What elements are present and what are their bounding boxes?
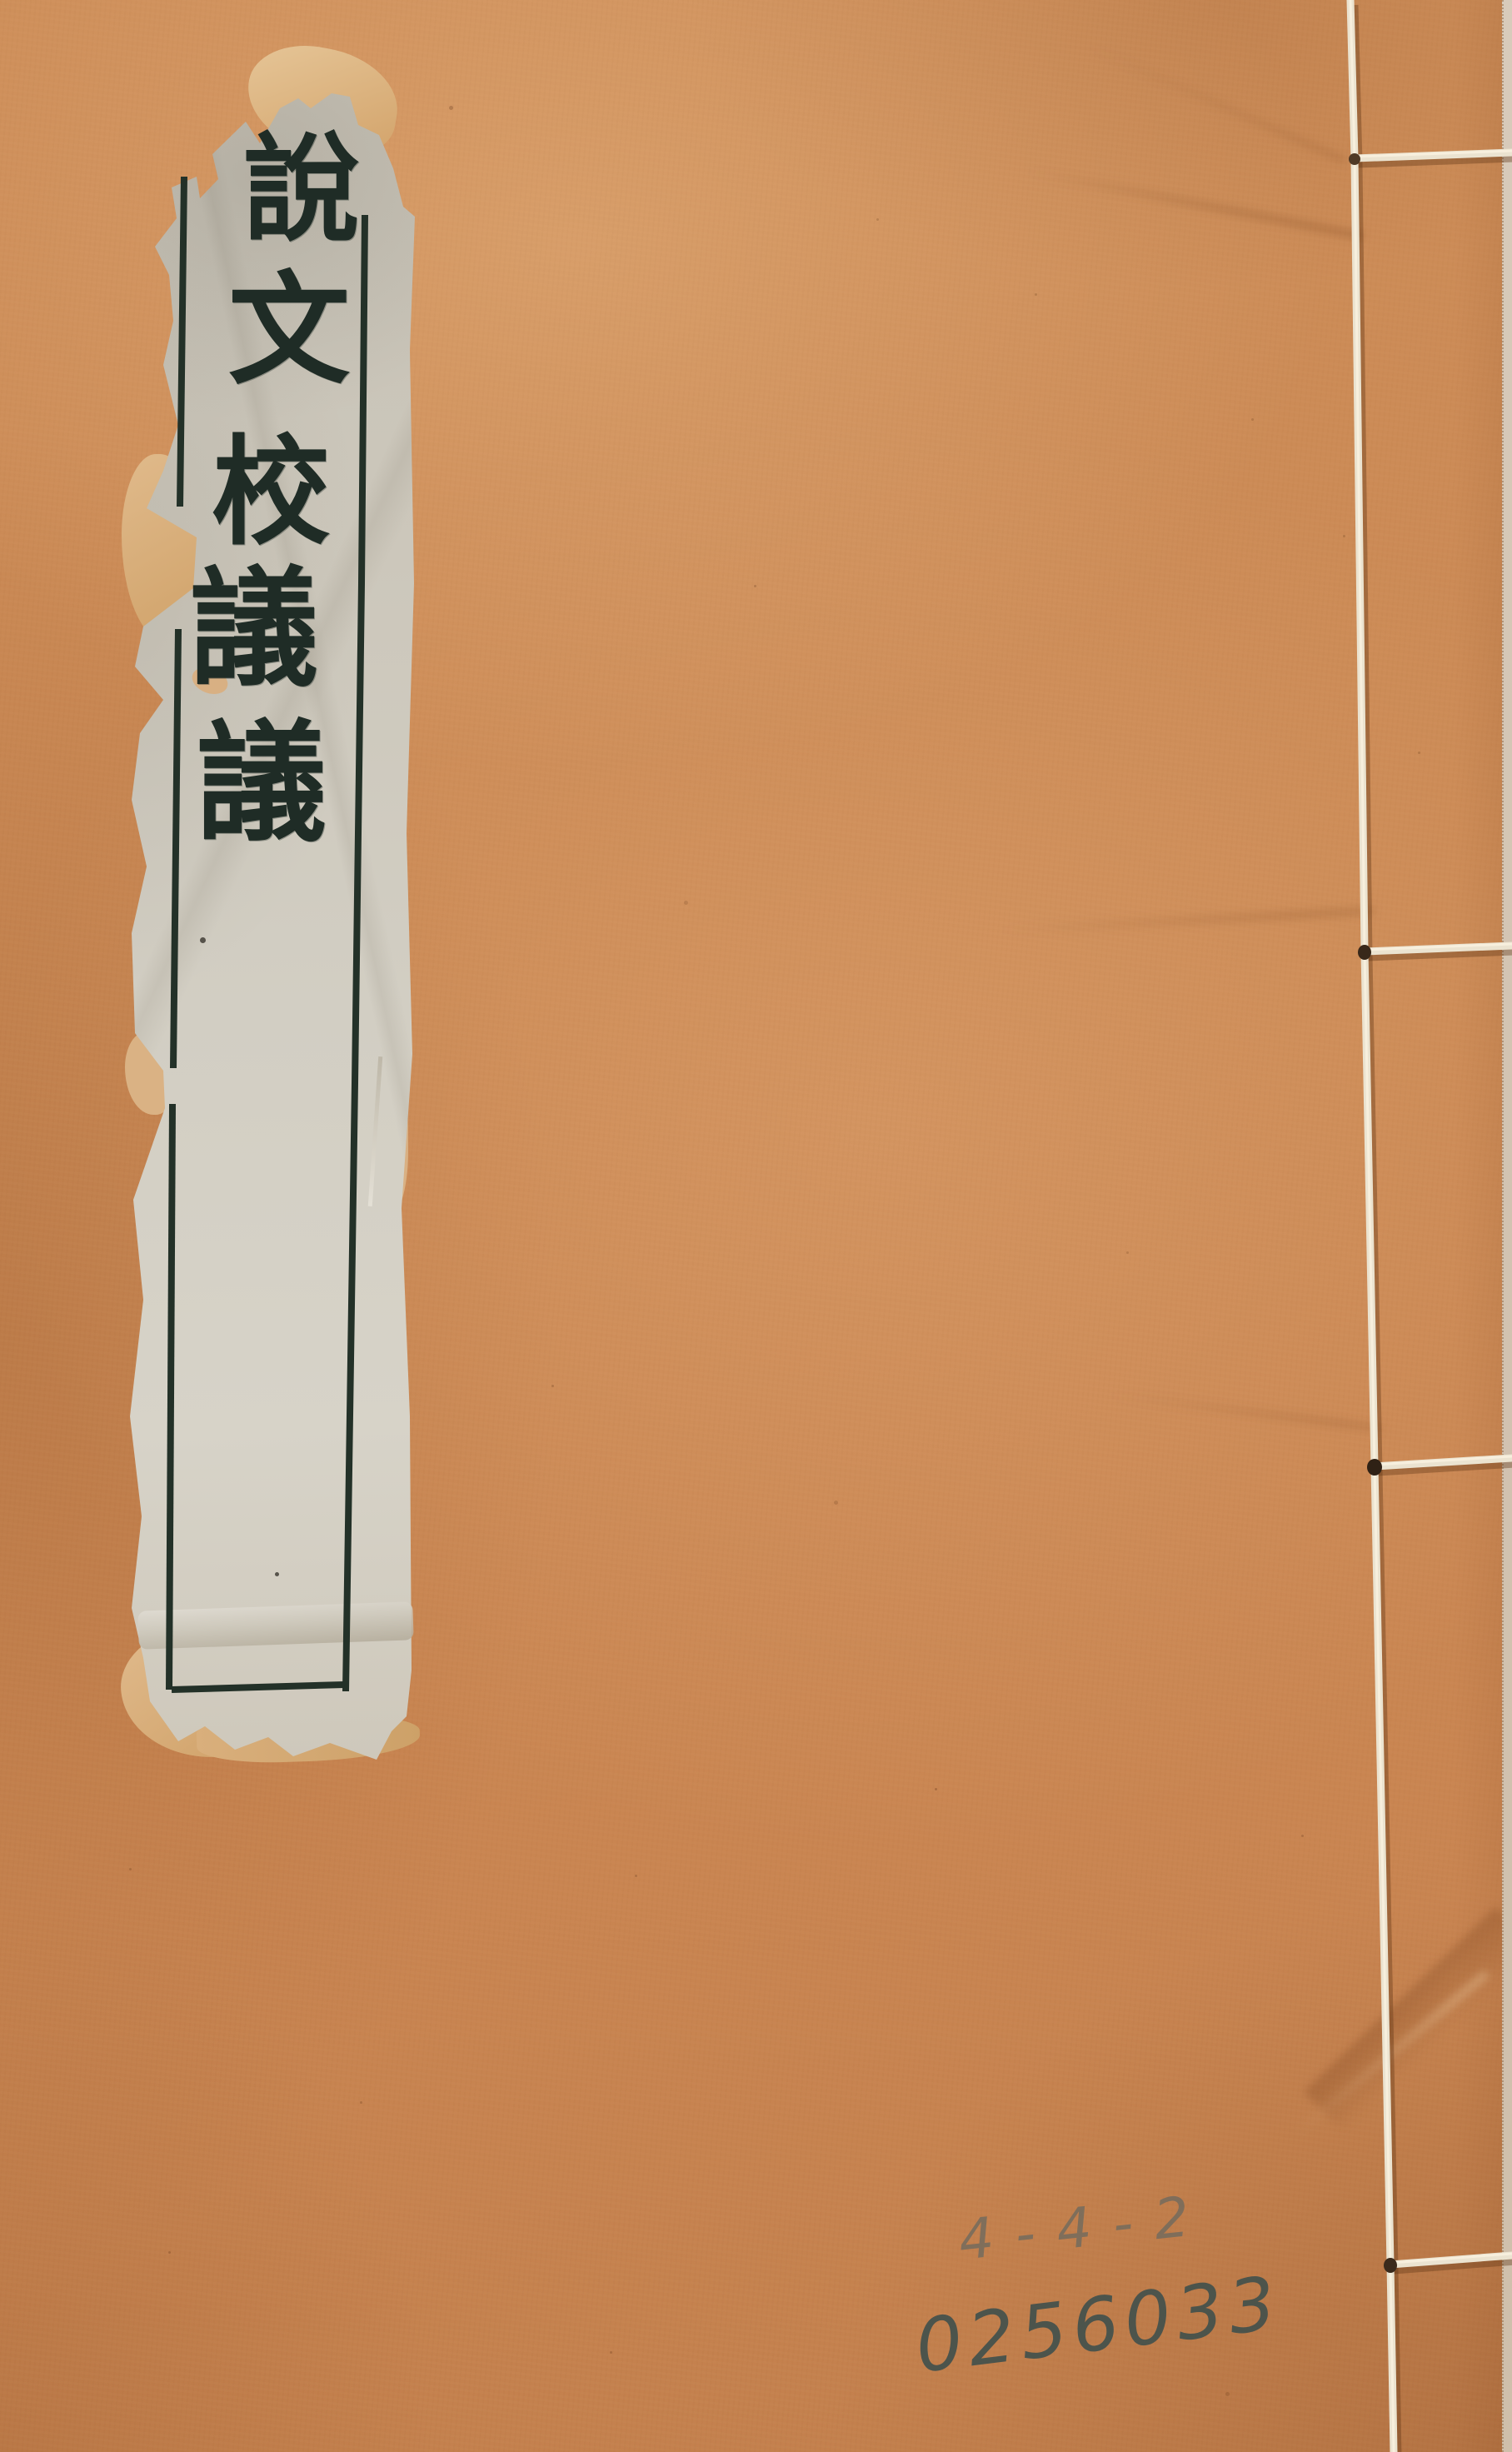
scanned-book-cover: 說 文 校 議 議 [0, 0, 1512, 2452]
stitch-hole [1367, 1459, 1382, 1476]
binding-threads [0, 0, 1512, 2452]
stitch-hole [1358, 945, 1371, 960]
stitch-knot [1349, 153, 1360, 165]
stitch-hole [1384, 2258, 1397, 2273]
